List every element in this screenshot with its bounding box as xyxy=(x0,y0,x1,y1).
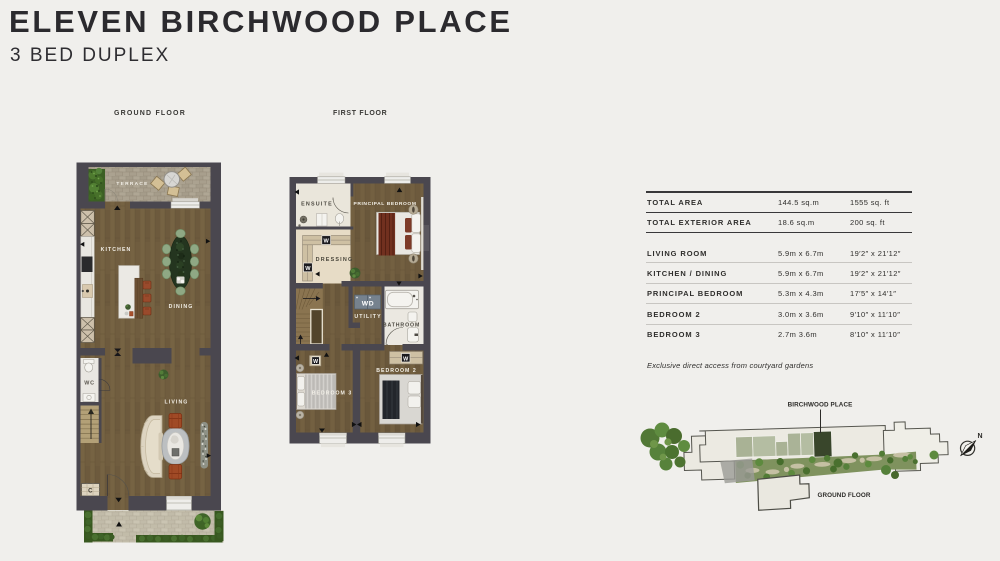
svg-text:W: W xyxy=(313,359,318,365)
svg-text:DINING: DINING xyxy=(169,304,194,310)
svg-text:GROUND FLOOR: GROUND FLOOR xyxy=(818,492,871,499)
svg-text:W: W xyxy=(324,239,330,245)
svg-text:N: N xyxy=(978,433,983,440)
svg-text:BEDROOM 3: BEDROOM 3 xyxy=(312,390,352,396)
svg-text:WD: WD xyxy=(362,301,375,308)
svg-text:ENSUITE: ENSUITE xyxy=(301,202,333,208)
svg-text:TERRACE: TERRACE xyxy=(116,181,148,187)
svg-text:WC: WC xyxy=(84,381,94,387)
svg-text:BIRCHWOOD PLACE: BIRCHWOOD PLACE xyxy=(788,402,853,409)
svg-text:PRINCIPAL BEDROOM: PRINCIPAL BEDROOM xyxy=(353,201,416,207)
svg-text:W: W xyxy=(305,266,311,272)
svg-text:DRESSING: DRESSING xyxy=(316,257,354,263)
svg-text:UTILITY: UTILITY xyxy=(354,314,381,320)
svg-text:C: C xyxy=(88,488,93,494)
svg-text:LIVING: LIVING xyxy=(165,400,189,406)
svg-text:KITCHEN: KITCHEN xyxy=(101,247,132,253)
svg-text:BEDROOM 2: BEDROOM 2 xyxy=(376,368,416,374)
